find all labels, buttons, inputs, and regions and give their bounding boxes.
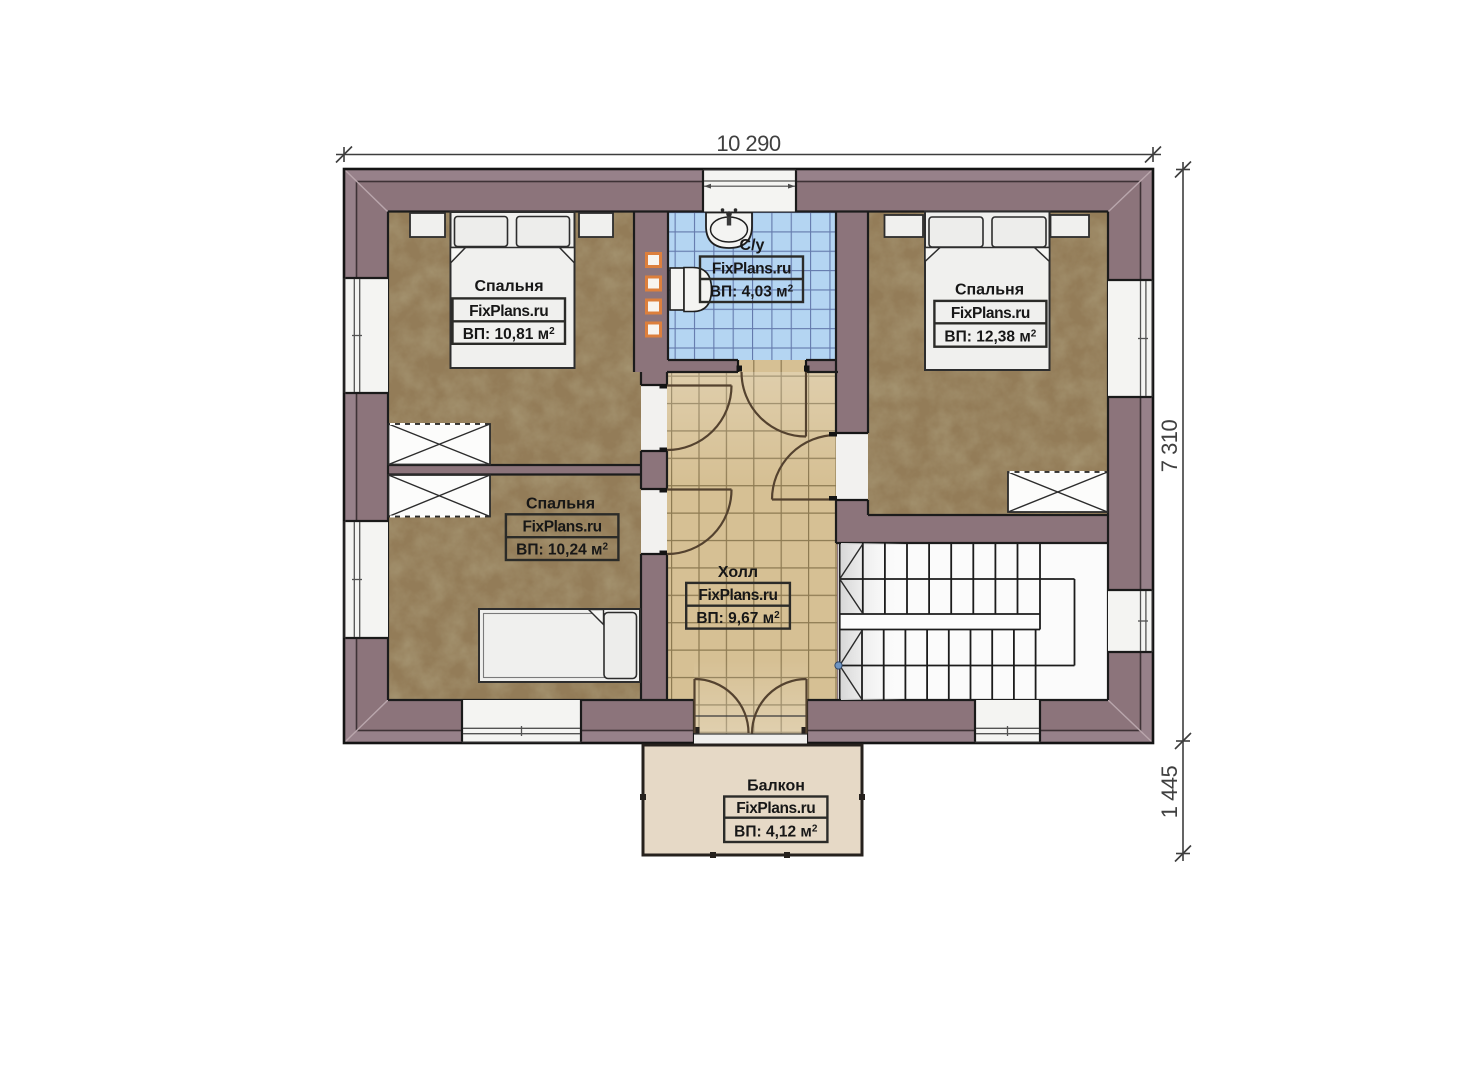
svg-text:Балкон: Балкон [747, 778, 805, 795]
svg-text:7 310: 7 310 [1157, 419, 1182, 472]
svg-text:Спальня: Спальня [474, 278, 543, 295]
svg-text:ВП: 12,38 м2: ВП: 12,38 м2 [944, 328, 1036, 345]
svg-text:FixPlans.ru: FixPlans.ru [523, 519, 602, 536]
svg-text:10 290: 10 290 [716, 131, 781, 156]
svg-text:ВП: 10,24 м2: ВП: 10,24 м2 [516, 542, 608, 559]
svg-text:ВП: 4,12 м2: ВП: 4,12 м2 [734, 824, 818, 841]
svg-text:ВП: 9,67 м2: ВП: 9,67 м2 [696, 610, 780, 627]
svg-text:FixPlans.ru: FixPlans.ru [712, 261, 791, 278]
svg-text:Спальня: Спальня [955, 282, 1024, 299]
svg-text:FixPlans.ru: FixPlans.ru [698, 587, 777, 604]
svg-text:ВП: 4,03 м2: ВП: 4,03 м2 [710, 284, 794, 301]
svg-text:Спальня: Спальня [526, 496, 595, 513]
svg-text:FixPlans.ru: FixPlans.ru [736, 800, 815, 817]
svg-text:С/у: С/у [740, 237, 765, 254]
svg-text:FixPlans.ru: FixPlans.ru [951, 305, 1030, 322]
svg-text:Холл: Холл [718, 564, 758, 581]
svg-text:ВП: 10,81 м2: ВП: 10,81 м2 [463, 326, 555, 343]
svg-text:FixPlans.ru: FixPlans.ru [469, 303, 548, 320]
svg-text:1 445: 1 445 [1157, 765, 1182, 818]
